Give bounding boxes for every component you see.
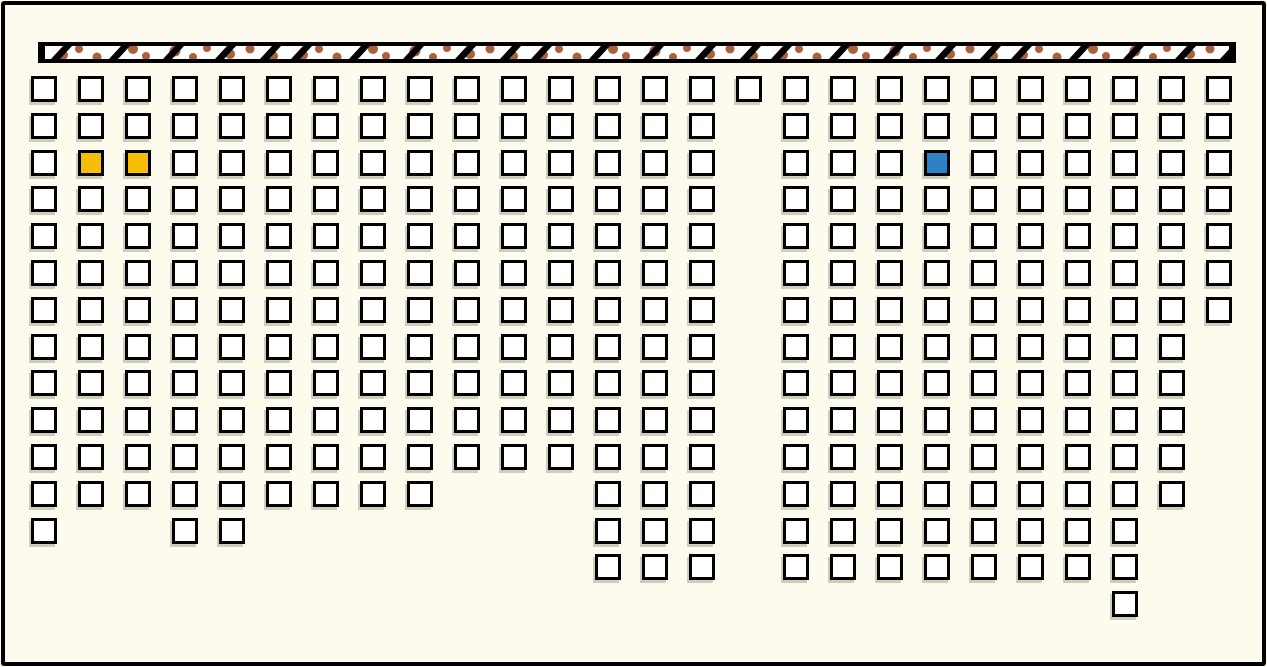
seat[interactable] — [266, 481, 292, 507]
seat[interactable] — [830, 76, 856, 102]
seat[interactable] — [595, 554, 621, 580]
seat[interactable] — [595, 407, 621, 433]
seat[interactable] — [1159, 297, 1185, 323]
seat[interactable] — [689, 334, 715, 360]
seat[interactable] — [924, 223, 950, 249]
seat[interactable] — [360, 370, 386, 396]
seat[interactable] — [877, 554, 903, 580]
seat[interactable] — [830, 223, 856, 249]
seat[interactable] — [877, 334, 903, 360]
seat[interactable] — [407, 76, 433, 102]
seat[interactable] — [1018, 297, 1044, 323]
seat[interactable] — [971, 370, 997, 396]
seat[interactable] — [1018, 223, 1044, 249]
seat[interactable] — [783, 407, 809, 433]
seat[interactable] — [407, 444, 433, 470]
seat[interactable] — [266, 76, 292, 102]
seat[interactable] — [1159, 113, 1185, 139]
seat[interactable] — [783, 370, 809, 396]
seat[interactable] — [1159, 260, 1185, 286]
seat[interactable] — [830, 481, 856, 507]
seat[interactable] — [971, 334, 997, 360]
seat[interactable] — [783, 481, 809, 507]
seat[interactable] — [219, 297, 245, 323]
seat[interactable] — [595, 518, 621, 544]
seat[interactable] — [830, 407, 856, 433]
seat[interactable] — [1018, 113, 1044, 139]
seat[interactable] — [31, 481, 57, 507]
seat[interactable] — [31, 186, 57, 212]
seat[interactable] — [501, 334, 527, 360]
seat[interactable] — [595, 223, 621, 249]
seat[interactable] — [172, 186, 198, 212]
seat[interactable] — [266, 370, 292, 396]
seat[interactable] — [78, 444, 104, 470]
seat[interactable] — [642, 113, 668, 139]
seat[interactable] — [1018, 186, 1044, 212]
seat[interactable] — [642, 297, 668, 323]
seat[interactable] — [219, 334, 245, 360]
seat[interactable] — [877, 186, 903, 212]
seat[interactable] — [877, 370, 903, 396]
seat[interactable] — [454, 370, 480, 396]
seat[interactable] — [1018, 554, 1044, 580]
seat[interactable] — [595, 481, 621, 507]
seat[interactable] — [501, 186, 527, 212]
seat[interactable] — [548, 260, 574, 286]
seat[interactable] — [783, 186, 809, 212]
seat[interactable] — [1018, 518, 1044, 544]
seat[interactable] — [783, 334, 809, 360]
seat[interactable] — [360, 260, 386, 286]
seat[interactable] — [830, 260, 856, 286]
seat[interactable] — [1112, 444, 1138, 470]
seat[interactable] — [689, 481, 715, 507]
seat[interactable] — [924, 481, 950, 507]
seat[interactable] — [1112, 150, 1138, 176]
seat[interactable] — [971, 554, 997, 580]
seat[interactable] — [78, 223, 104, 249]
seat[interactable] — [971, 186, 997, 212]
seat[interactable] — [172, 334, 198, 360]
seat[interactable] — [266, 260, 292, 286]
seat[interactable] — [642, 370, 668, 396]
seat[interactable] — [783, 113, 809, 139]
seat[interactable] — [1112, 370, 1138, 396]
seat[interactable] — [1112, 407, 1138, 433]
seat[interactable] — [501, 76, 527, 102]
seat[interactable] — [266, 150, 292, 176]
seat[interactable] — [924, 518, 950, 544]
seat[interactable] — [689, 113, 715, 139]
seat[interactable] — [454, 150, 480, 176]
seat[interactable] — [313, 150, 339, 176]
seat[interactable] — [783, 150, 809, 176]
seat[interactable] — [172, 444, 198, 470]
seat[interactable] — [877, 223, 903, 249]
seat[interactable] — [595, 370, 621, 396]
seat[interactable] — [454, 113, 480, 139]
seat[interactable] — [548, 370, 574, 396]
seat[interactable] — [924, 260, 950, 286]
seat[interactable] — [219, 223, 245, 249]
seat-highlight-blue[interactable] — [924, 150, 950, 176]
seat[interactable] — [689, 186, 715, 212]
seat[interactable] — [360, 150, 386, 176]
seat[interactable] — [1112, 481, 1138, 507]
seat[interactable] — [830, 186, 856, 212]
seat[interactable] — [78, 407, 104, 433]
seat[interactable] — [924, 407, 950, 433]
seat[interactable] — [924, 554, 950, 580]
seat[interactable] — [783, 444, 809, 470]
seat[interactable] — [360, 113, 386, 139]
seat[interactable] — [877, 444, 903, 470]
seat[interactable] — [172, 76, 198, 102]
seat[interactable] — [548, 297, 574, 323]
seat[interactable] — [219, 370, 245, 396]
seat[interactable] — [219, 481, 245, 507]
seat[interactable] — [689, 370, 715, 396]
seat[interactable] — [971, 407, 997, 433]
seat[interactable] — [1206, 113, 1232, 139]
seat[interactable] — [1206, 76, 1232, 102]
seat[interactable] — [219, 407, 245, 433]
seat[interactable] — [407, 334, 433, 360]
seat[interactable] — [407, 113, 433, 139]
seat[interactable] — [1018, 407, 1044, 433]
seat[interactable] — [78, 113, 104, 139]
seat[interactable] — [31, 223, 57, 249]
seat[interactable] — [1112, 334, 1138, 360]
seat[interactable] — [266, 223, 292, 249]
seat[interactable] — [595, 297, 621, 323]
seat[interactable] — [924, 370, 950, 396]
seat[interactable] — [125, 481, 151, 507]
seat[interactable] — [642, 554, 668, 580]
seat[interactable] — [313, 76, 339, 102]
seat[interactable] — [1159, 150, 1185, 176]
seat[interactable] — [971, 223, 997, 249]
seat[interactable] — [360, 297, 386, 323]
seat[interactable] — [454, 260, 480, 286]
seat[interactable] — [1065, 150, 1091, 176]
seat[interactable] — [1112, 518, 1138, 544]
seat[interactable] — [360, 186, 386, 212]
seat[interactable] — [1065, 113, 1091, 139]
seat[interactable] — [31, 407, 57, 433]
seat[interactable] — [1206, 186, 1232, 212]
seat[interactable] — [1065, 481, 1091, 507]
seat[interactable] — [78, 186, 104, 212]
seat[interactable] — [1065, 370, 1091, 396]
seat[interactable] — [689, 260, 715, 286]
seat[interactable] — [830, 444, 856, 470]
seat[interactable] — [689, 518, 715, 544]
seat[interactable] — [172, 370, 198, 396]
seat[interactable] — [313, 481, 339, 507]
seat[interactable] — [501, 370, 527, 396]
seat[interactable] — [783, 223, 809, 249]
seat[interactable] — [407, 481, 433, 507]
seat[interactable] — [830, 297, 856, 323]
seat[interactable] — [313, 223, 339, 249]
seat[interactable] — [595, 113, 621, 139]
seat[interactable] — [454, 76, 480, 102]
seat[interactable] — [1112, 223, 1138, 249]
seat[interactable] — [642, 186, 668, 212]
seat[interactable] — [1159, 444, 1185, 470]
seat[interactable] — [78, 260, 104, 286]
seat[interactable] — [548, 407, 574, 433]
seat[interactable] — [1018, 150, 1044, 176]
seat-highlight-yellow-1[interactable] — [78, 150, 104, 176]
seat[interactable] — [548, 113, 574, 139]
seat[interactable] — [1159, 407, 1185, 433]
seat[interactable] — [454, 186, 480, 212]
seat[interactable] — [971, 113, 997, 139]
seat[interactable] — [313, 113, 339, 139]
seat[interactable] — [689, 554, 715, 580]
seat[interactable] — [266, 334, 292, 360]
seat[interactable] — [642, 518, 668, 544]
seat[interactable] — [501, 444, 527, 470]
seat[interactable] — [877, 76, 903, 102]
seat[interactable] — [830, 334, 856, 360]
seat[interactable] — [219, 260, 245, 286]
seat[interactable] — [407, 150, 433, 176]
seat[interactable] — [548, 186, 574, 212]
seat[interactable] — [595, 76, 621, 102]
seat[interactable] — [1065, 186, 1091, 212]
seat[interactable] — [172, 297, 198, 323]
seat[interactable] — [548, 76, 574, 102]
seat[interactable] — [1159, 223, 1185, 249]
seat[interactable] — [454, 297, 480, 323]
seat[interactable] — [971, 76, 997, 102]
seat[interactable] — [125, 334, 151, 360]
seat[interactable] — [313, 334, 339, 360]
seat[interactable] — [1112, 76, 1138, 102]
seat[interactable] — [877, 481, 903, 507]
seat[interactable] — [1206, 260, 1232, 286]
seat[interactable] — [501, 113, 527, 139]
seat[interactable] — [924, 113, 950, 139]
seat[interactable] — [783, 297, 809, 323]
seat[interactable] — [31, 370, 57, 396]
seat[interactable] — [689, 444, 715, 470]
seat[interactable] — [924, 186, 950, 212]
seat[interactable] — [783, 76, 809, 102]
seat[interactable] — [407, 223, 433, 249]
seat[interactable] — [501, 150, 527, 176]
seat[interactable] — [31, 444, 57, 470]
seat-highlight-yellow-2[interactable] — [125, 150, 151, 176]
seat[interactable] — [642, 260, 668, 286]
seat[interactable] — [1065, 260, 1091, 286]
seat[interactable] — [924, 334, 950, 360]
seat[interactable] — [78, 481, 104, 507]
seat[interactable] — [501, 407, 527, 433]
seat[interactable] — [407, 370, 433, 396]
seat[interactable] — [313, 444, 339, 470]
seat[interactable] — [548, 150, 574, 176]
seat[interactable] — [313, 407, 339, 433]
seat[interactable] — [125, 370, 151, 396]
seat[interactable] — [877, 407, 903, 433]
seat[interactable] — [219, 186, 245, 212]
seat[interactable] — [125, 407, 151, 433]
seat[interactable] — [548, 334, 574, 360]
seat[interactable] — [407, 186, 433, 212]
seat[interactable] — [360, 481, 386, 507]
seat[interactable] — [78, 370, 104, 396]
seat[interactable] — [125, 113, 151, 139]
seat[interactable] — [689, 76, 715, 102]
seat[interactable] — [172, 518, 198, 544]
seat[interactable] — [924, 76, 950, 102]
seat[interactable] — [1018, 370, 1044, 396]
seat[interactable] — [736, 76, 762, 102]
seat[interactable] — [830, 518, 856, 544]
seat[interactable] — [1065, 444, 1091, 470]
seat[interactable] — [31, 518, 57, 544]
seat[interactable] — [31, 113, 57, 139]
seat[interactable] — [689, 150, 715, 176]
seat[interactable] — [1018, 334, 1044, 360]
seat[interactable] — [266, 297, 292, 323]
seat[interactable] — [266, 186, 292, 212]
seat[interactable] — [360, 76, 386, 102]
seat[interactable] — [830, 370, 856, 396]
seat[interactable] — [360, 407, 386, 433]
seat[interactable] — [548, 444, 574, 470]
seat[interactable] — [78, 76, 104, 102]
seat[interactable] — [266, 407, 292, 433]
seat[interactable] — [219, 518, 245, 544]
seat[interactable] — [971, 518, 997, 544]
seat[interactable] — [1065, 554, 1091, 580]
seat[interactable] — [313, 260, 339, 286]
seat[interactable] — [125, 223, 151, 249]
seat[interactable] — [1206, 297, 1232, 323]
seat[interactable] — [501, 260, 527, 286]
seat[interactable] — [595, 260, 621, 286]
seat[interactable] — [454, 407, 480, 433]
seat[interactable] — [548, 223, 574, 249]
seat[interactable] — [783, 554, 809, 580]
seat[interactable] — [1065, 334, 1091, 360]
seat[interactable] — [1112, 260, 1138, 286]
seat[interactable] — [1065, 76, 1091, 102]
seat[interactable] — [219, 76, 245, 102]
seat[interactable] — [830, 554, 856, 580]
seat[interactable] — [1018, 76, 1044, 102]
seat[interactable] — [1112, 591, 1138, 617]
seat[interactable] — [689, 407, 715, 433]
seat[interactable] — [31, 150, 57, 176]
seat[interactable] — [266, 113, 292, 139]
seat[interactable] — [830, 150, 856, 176]
seat[interactable] — [172, 223, 198, 249]
seat[interactable] — [830, 113, 856, 139]
seat[interactable] — [360, 223, 386, 249]
seat[interactable] — [219, 444, 245, 470]
seat[interactable] — [31, 260, 57, 286]
seat[interactable] — [172, 150, 198, 176]
seat[interactable] — [172, 113, 198, 139]
seat[interactable] — [1159, 334, 1185, 360]
seat[interactable] — [1159, 76, 1185, 102]
seat[interactable] — [971, 260, 997, 286]
seat[interactable] — [1112, 297, 1138, 323]
seat[interactable] — [642, 223, 668, 249]
seat[interactable] — [313, 297, 339, 323]
seat[interactable] — [783, 260, 809, 286]
seat[interactable] — [971, 444, 997, 470]
seat[interactable] — [595, 334, 621, 360]
seat[interactable] — [595, 150, 621, 176]
seat[interactable] — [1159, 370, 1185, 396]
seat[interactable] — [783, 518, 809, 544]
seat[interactable] — [454, 223, 480, 249]
seat[interactable] — [313, 370, 339, 396]
seat[interactable] — [501, 223, 527, 249]
seat[interactable] — [1065, 407, 1091, 433]
seat[interactable] — [1112, 113, 1138, 139]
seat[interactable] — [1159, 481, 1185, 507]
seat[interactable] — [313, 186, 339, 212]
seat[interactable] — [642, 481, 668, 507]
seat[interactable] — [125, 76, 151, 102]
seat[interactable] — [125, 260, 151, 286]
seat[interactable] — [172, 481, 198, 507]
seat[interactable] — [360, 444, 386, 470]
seat[interactable] — [877, 113, 903, 139]
seat[interactable] — [971, 481, 997, 507]
seat[interactable] — [642, 76, 668, 102]
seat[interactable] — [689, 297, 715, 323]
seat[interactable] — [1065, 223, 1091, 249]
seat[interactable] — [1018, 444, 1044, 470]
seat[interactable] — [642, 334, 668, 360]
seat[interactable] — [172, 407, 198, 433]
seat[interactable] — [78, 334, 104, 360]
seat[interactable] — [595, 444, 621, 470]
seat[interactable] — [642, 407, 668, 433]
seat[interactable] — [125, 444, 151, 470]
seat[interactable] — [125, 297, 151, 323]
seat[interactable] — [1065, 518, 1091, 544]
seat[interactable] — [454, 444, 480, 470]
seat[interactable] — [924, 444, 950, 470]
seat[interactable] — [407, 260, 433, 286]
seat[interactable] — [219, 113, 245, 139]
seat[interactable] — [877, 150, 903, 176]
seat[interactable] — [971, 150, 997, 176]
seat[interactable] — [1206, 223, 1232, 249]
seat[interactable] — [924, 297, 950, 323]
seat[interactable] — [1018, 481, 1044, 507]
seat[interactable] — [595, 186, 621, 212]
seat[interactable] — [1018, 260, 1044, 286]
seat[interactable] — [877, 260, 903, 286]
seat[interactable] — [360, 334, 386, 360]
seat[interactable] — [407, 297, 433, 323]
seat[interactable] — [1112, 186, 1138, 212]
seat[interactable] — [642, 150, 668, 176]
seat[interactable] — [501, 297, 527, 323]
